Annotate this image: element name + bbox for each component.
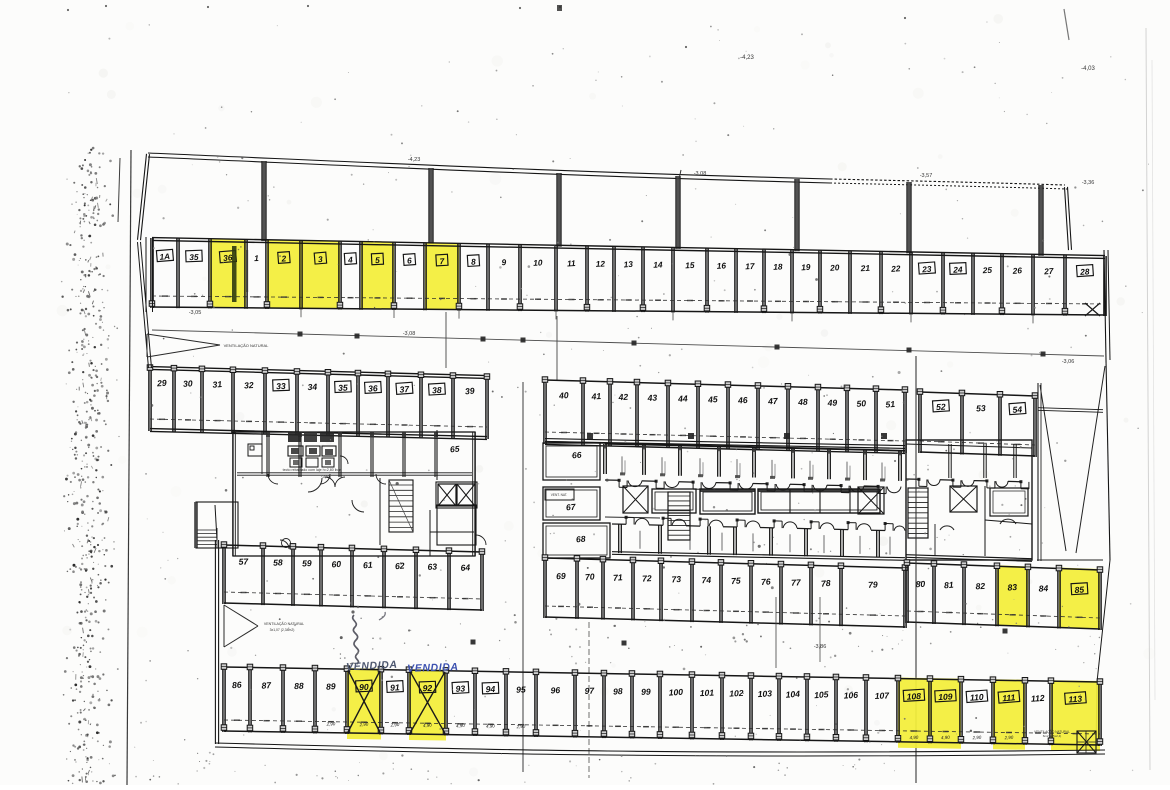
svg-text:-3,08: -3,08 [694,171,707,177]
svg-text:100: 100 [668,687,683,698]
svg-text:54: 54 [1012,404,1022,415]
svg-text:105: 105 [814,689,829,700]
svg-text:-4,23: -4,23 [740,55,754,61]
svg-text:58: 58 [273,557,283,567]
svg-text:30: 30 [183,378,193,389]
svg-text:41: 41 [590,391,601,402]
svg-text:2: 2 [280,253,287,263]
svg-text:50: 50 [856,398,867,409]
svg-text:38: 38 [432,385,442,396]
svg-text:1A: 1A [159,251,170,262]
svg-text:VENTILAÇÃO NATURAL: VENTILAÇÃO NATURAL [264,621,304,626]
svg-text:25: 25 [981,265,992,276]
svg-text:28: 28 [1079,266,1090,277]
svg-text:98: 98 [613,686,623,697]
svg-text:17: 17 [745,261,755,271]
svg-text:-3,57: -3,57 [920,173,933,179]
svg-text:81: 81 [944,580,955,591]
svg-text:-4,03: -4,03 [1081,66,1095,72]
svg-text:42: 42 [617,392,628,403]
svg-text:1: 1 [254,253,259,263]
svg-text:89: 89 [326,681,336,692]
svg-text:15: 15 [685,260,695,271]
svg-text:97: 97 [584,686,595,697]
svg-text:43: 43 [646,393,657,404]
svg-text:16: 16 [716,260,726,270]
svg-text:10: 10 [533,257,543,268]
svg-text:VENT. NAT.: VENT. NAT. [551,493,568,497]
svg-text:23: 23 [921,264,932,275]
svg-text:29: 29 [156,378,167,389]
svg-text:2,90: 2,90 [389,722,400,728]
svg-text:92: 92 [422,683,432,693]
svg-text:-3,05: -3,05 [189,310,202,316]
svg-text:-3,86: -3,86 [814,644,827,650]
svg-text:77: 77 [791,577,802,588]
svg-text:-3,36: -3,36 [1082,180,1095,186]
svg-text:4: 4 [347,254,354,264]
svg-text:48: 48 [797,397,808,407]
svg-text:3x1,07 (2,34m2): 3x1,07 (2,34m2) [270,628,295,632]
svg-text:-3,08: -3,08 [403,331,416,337]
svg-text:62: 62 [395,561,406,572]
svg-text:71: 71 [613,572,623,583]
svg-text:27: 27 [1043,266,1054,277]
svg-text:VENDIDA: VENDIDA [407,661,459,675]
svg-text:82: 82 [975,581,985,592]
svg-text:18: 18 [773,261,783,271]
svg-text:2,90: 2,90 [515,724,526,730]
svg-text:-4,23: -4,23 [408,157,421,163]
svg-text:91: 91 [390,682,400,692]
svg-text:52: 52 [936,402,946,413]
svg-text:40: 40 [558,390,569,401]
svg-text:13: 13 [623,259,633,270]
svg-text:35: 35 [189,252,199,262]
svg-text:61: 61 [363,560,374,571]
svg-text:-3,06: -3,06 [1062,359,1075,365]
svg-text:106: 106 [843,690,858,701]
svg-text:32: 32 [244,380,254,391]
svg-text:45: 45 [707,394,718,405]
svg-text:5: 5 [375,255,380,265]
svg-text:36: 36 [368,383,378,394]
svg-text:12: 12 [595,258,605,268]
svg-text:101: 101 [700,688,715,699]
svg-text:22: 22 [890,263,901,274]
svg-text:31: 31 [212,379,223,390]
svg-text:51: 51 [885,399,896,410]
svg-text:VENTILAÇÃO NATURAL: VENTILAÇÃO NATURAL [224,343,270,348]
svg-text:110: 110 [970,692,985,703]
svg-text:39: 39 [465,386,476,397]
svg-text:53: 53 [976,403,986,414]
svg-text:85: 85 [1074,584,1084,595]
svg-text:63: 63 [427,561,437,572]
svg-text:75: 75 [731,576,741,587]
svg-text:2,90: 2,90 [1003,735,1014,741]
svg-text:111: 111 [1002,692,1016,703]
svg-text:70: 70 [585,571,596,582]
svg-text:74: 74 [701,575,711,585]
svg-text:109: 109 [938,691,953,702]
svg-text:2,90: 2,90 [971,735,982,741]
svg-text:19: 19 [801,262,811,273]
svg-text:113: 113 [1068,694,1083,705]
svg-text:72: 72 [642,573,652,584]
svg-text:60: 60 [331,559,342,570]
svg-text:6m2 (2,5x2,4): 6m2 (2,5x2,4) [1043,734,1062,738]
svg-text:21: 21 [859,263,870,274]
svg-text:26: 26 [1011,265,1022,276]
svg-text:24: 24 [952,264,963,274]
svg-text:68: 68 [576,534,587,545]
svg-text:35: 35 [338,383,348,393]
svg-text:65: 65 [450,444,461,455]
svg-text:11: 11 [567,258,577,269]
svg-text:83: 83 [1007,582,1018,593]
svg-text:47: 47 [767,396,779,407]
svg-text:36: 36 [223,252,233,263]
svg-text:49: 49 [826,397,837,407]
svg-text:33: 33 [276,381,286,391]
svg-text:79: 79 [868,579,878,589]
svg-text:44: 44 [677,393,688,404]
svg-text:46: 46 [737,395,749,406]
svg-text:102: 102 [729,688,744,699]
svg-text:4,90: 4,90 [941,735,951,741]
svg-text:64: 64 [460,562,470,573]
svg-text:90: 90 [359,682,369,692]
svg-text:95: 95 [516,684,526,694]
svg-text:99: 99 [641,686,651,696]
svg-text:80: 80 [915,579,925,589]
svg-text:93: 93 [455,683,465,694]
svg-text:84: 84 [1038,583,1048,593]
svg-text:4,90: 4,90 [423,722,433,728]
svg-text:69: 69 [556,571,566,581]
svg-text:tecto rebaixado com laje h=2,8: tecto rebaixado com laje h=2,80 livre [283,468,342,472]
svg-text:94: 94 [485,684,495,694]
svg-text:4,90: 4,90 [486,723,496,729]
svg-text:107: 107 [874,690,890,701]
svg-text:78: 78 [821,578,832,589]
svg-text:59: 59 [302,558,312,568]
svg-text:76: 76 [761,576,771,587]
svg-text:86: 86 [232,680,243,691]
svg-text:103: 103 [757,688,772,699]
svg-text:108: 108 [906,691,921,702]
svg-text:2,90: 2,90 [325,721,336,727]
svg-text:104: 104 [785,689,800,700]
svg-text:112: 112 [1031,693,1046,704]
svg-text:73: 73 [671,574,682,585]
svg-text:34: 34 [307,382,317,392]
svg-text:20: 20 [829,262,840,273]
svg-text:96: 96 [550,685,560,696]
svg-text:14: 14 [653,259,663,269]
svg-text:57: 57 [238,556,249,566]
svg-text:2,90: 2,90 [358,722,369,728]
svg-text:88: 88 [294,681,304,691]
svg-text:4,90: 4,90 [909,735,919,741]
svg-text:4,90: 4,90 [456,723,466,729]
